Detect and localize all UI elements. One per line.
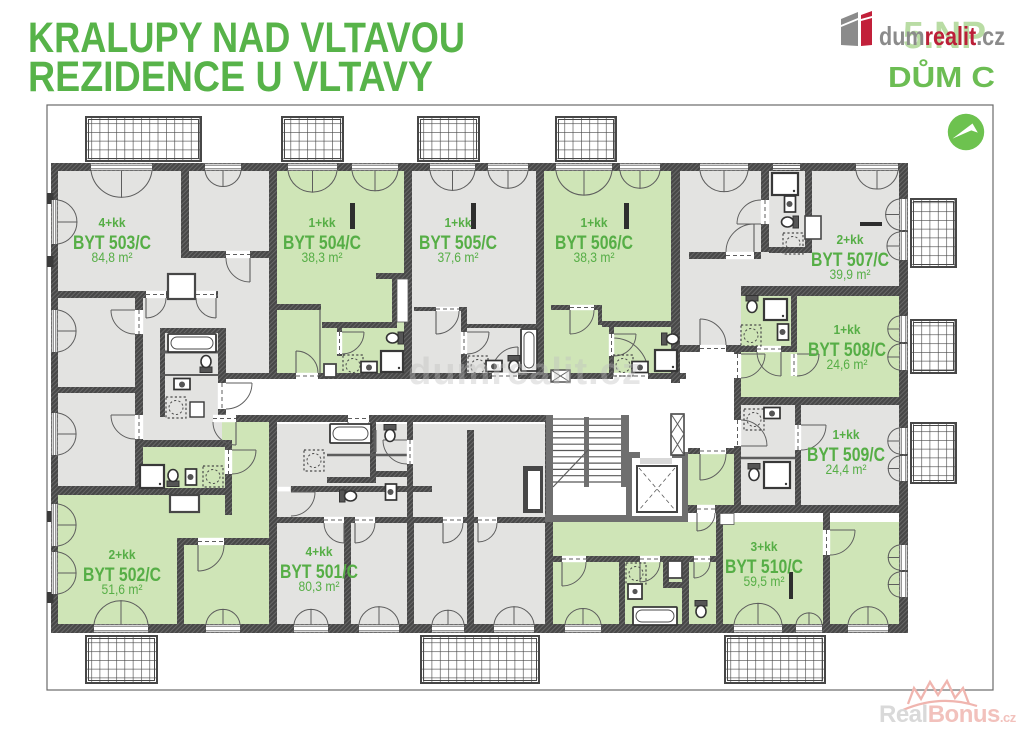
svg-text:37,6 m²: 37,6 m² [438,249,479,265]
svg-text:38,3 m²: 38,3 m² [302,249,343,265]
svg-text:38,3 m²: 38,3 m² [574,249,615,265]
svg-text:REZIDENCE U VLTAVY: REZIDENCE U VLTAVY [28,53,433,101]
svg-text:1+kk: 1+kk [833,427,861,442]
svg-text:80,3 m²: 80,3 m² [299,578,340,594]
svg-text:3+kk: 3+kk [751,539,779,554]
svg-text:2+kk: 2+kk [109,547,137,562]
svg-text:24,4 m²: 24,4 m² [826,461,867,477]
svg-text:24,6 m²: 24,6 m² [827,356,868,372]
svg-text:RealBonus.cz: RealBonus.cz [879,701,1017,727]
svg-text:1+kk: 1+kk [834,322,862,337]
svg-text:1+kk: 1+kk [581,215,609,230]
svg-text:2+kk: 2+kk [837,232,865,247]
svg-text:DŮM C: DŮM C [888,58,995,94]
svg-text:4+kk: 4+kk [99,215,127,230]
svg-text:84,8 m²: 84,8 m² [92,249,133,265]
svg-text:4+kk: 4+kk [306,544,334,559]
svg-text:59,5 m²: 59,5 m² [744,573,785,589]
svg-text:51,6 m²: 51,6 m² [102,581,143,597]
svg-text:dumrealit.cz: dumrealit.cz [879,21,1005,51]
svg-text:1+kk: 1+kk [445,215,473,230]
svg-text:39,9 m²: 39,9 m² [830,266,871,282]
svg-text:1+kk: 1+kk [309,215,337,230]
svg-text:dumrealit.cz: dumrealit.cz [408,351,642,393]
